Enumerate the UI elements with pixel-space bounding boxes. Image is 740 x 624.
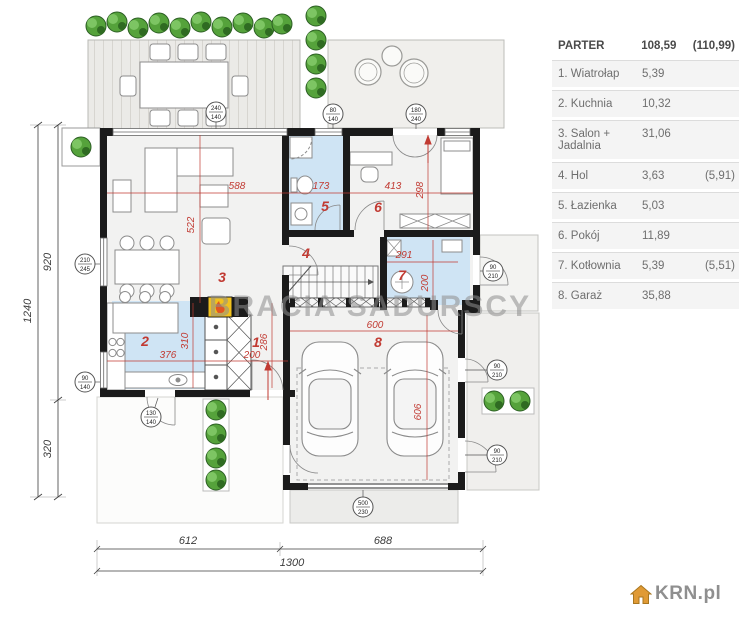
marker-top-value: 180 <box>411 108 422 114</box>
dim-total-height: 1240 <box>22 298 34 323</box>
legend-row-wiatrolap: 1. Wiatrołap 5,39 <box>552 60 739 87</box>
brand-name: KRN.pl <box>655 583 721 605</box>
room-label: 5. Łazienka <box>558 200 642 212</box>
wardrobe <box>400 214 470 228</box>
dim-salon-width: 588 <box>229 181 246 192</box>
marker-top-value: 500 <box>358 501 369 507</box>
legend-title: PARTER <box>558 40 641 52</box>
room-label: 3. Salon + Jadalnia <box>558 128 642 152</box>
bathroom-fixtures <box>290 137 313 225</box>
marker-bottom-value: 140 <box>80 385 91 391</box>
marker-bottom-value: 140 <box>211 115 222 121</box>
side-table <box>113 180 131 212</box>
marker-bottom-value: 210 <box>492 373 503 379</box>
room-number-3: 3 <box>218 269 226 285</box>
marker-top-value: 90 <box>490 265 497 271</box>
car-left <box>299 342 361 456</box>
room-area: 3,63 <box>642 170 694 182</box>
dim-bottom-total: 1300 <box>280 557 305 569</box>
room-label: 8. Garaż <box>558 290 642 302</box>
pillow <box>444 141 470 151</box>
marker-salon-left-window: 210 245 <box>75 254 100 274</box>
marker-bottom-value: 140 <box>146 420 157 426</box>
dim-kitchen-height: 310 <box>180 332 191 349</box>
dim-salon-height: 522 <box>186 216 197 233</box>
floor-plan-page: { "legend": { "header": {"label":"PARTER… <box>0 0 740 619</box>
desk-chair <box>361 167 378 182</box>
marker-top-value: 90 <box>494 449 501 455</box>
planter-top-left <box>62 128 100 166</box>
dim-upper-height: 920 <box>42 252 54 271</box>
marker-bottom-value: 230 <box>358 510 369 516</box>
legend-row-lazienka: 5. Łazienka 5,03 <box>552 192 739 219</box>
marker-bottom-value: 140 <box>328 117 339 123</box>
bushes-right-pair <box>482 388 534 414</box>
room-area: 35,88 <box>642 290 694 302</box>
marker-top-value: 130 <box>146 411 157 417</box>
room-label: 1. Wiatrołap <box>558 68 642 80</box>
room-number-8: 8 <box>374 334 382 350</box>
coffee-table <box>200 185 228 207</box>
marker-bottom-value: 210 <box>488 274 499 280</box>
pavement-left <box>97 397 283 523</box>
dim-bath-width: 173 <box>313 181 330 192</box>
watermark: BRACIA SADURSCY <box>209 290 531 323</box>
shelf <box>442 240 462 252</box>
dim-room6-width: 413 <box>385 181 402 192</box>
dim-hall-width: 200 <box>243 350 261 361</box>
room-number-7: 7 <box>398 267 407 283</box>
toilet <box>297 176 313 194</box>
legend-header: PARTER 108,59 (110,99) <box>552 36 739 60</box>
room-area: 10,32 <box>642 98 694 110</box>
dim-lower-height: 320 <box>42 439 54 458</box>
marker-top-value: 80 <box>330 108 337 114</box>
room-area: 31,06 <box>642 128 694 140</box>
room-area: 5,03 <box>642 200 694 212</box>
legend-row-salon: 3. Salon + Jadalnia 31,06 <box>552 120 739 159</box>
room-label: 2. Kuchnia <box>558 98 642 110</box>
legend-total-area-extra: (110,99) <box>693 40 735 52</box>
marker-top-value: 240 <box>211 106 222 112</box>
legend-row-kuchnia: 2. Kuchnia 10,32 <box>552 90 739 117</box>
armchair <box>202 218 230 244</box>
legend-total-area: 108,59 <box>641 40 693 52</box>
marker-bottom-value: 210 <box>492 458 503 464</box>
room-number-2: 2 <box>140 333 149 349</box>
legend-row-pokoj: 6. Pokój 11,89 <box>552 222 739 249</box>
marker-top-value: 90 <box>494 364 501 370</box>
shower <box>290 137 312 158</box>
room-number-5: 5 <box>321 198 329 214</box>
driveway-apron <box>290 490 458 523</box>
washer <box>291 203 312 225</box>
legend-row-garaz: 8. Garaż 35,88 <box>552 282 739 309</box>
hedge-bottom-strip <box>203 399 229 491</box>
dim-bottom-right: 688 <box>374 535 393 547</box>
toilet-tank <box>291 178 297 192</box>
room-legend: PARTER 108,59 (110,99) 1. Wiatrołap 5,39… <box>552 36 739 312</box>
room-area-extra: (5,91) <box>705 170 735 182</box>
dining-table <box>115 250 179 284</box>
legend-row-hol: 4. Hol 3,63 (5,91) <box>552 162 739 189</box>
hedge-top <box>86 12 292 38</box>
house-icon <box>630 584 652 605</box>
hedge-right-of-terrace <box>306 6 326 98</box>
room-area: 5,39 <box>642 68 694 80</box>
marker-kitchen-left-window: 90 140 <box>75 372 100 392</box>
garage-door <box>308 484 448 488</box>
dim-boiler-width: 291 <box>395 250 413 261</box>
island <box>113 303 178 333</box>
room-label: 7. Kotłownia <box>558 260 642 272</box>
desk <box>350 152 392 165</box>
dim-hall-height: 286 <box>259 333 270 351</box>
room-number-1: 1 <box>252 334 260 350</box>
room-number-6: 6 <box>374 199 382 215</box>
room-area: 5,39 <box>642 260 694 272</box>
room-number-4: 4 <box>301 245 310 261</box>
marker-bottom-value: 240 <box>411 117 422 123</box>
dim-room6-height: 298 <box>415 181 426 199</box>
room-label: 4. Hol <box>558 170 642 182</box>
dim-bottom-left: 612 <box>179 535 197 547</box>
car-right <box>384 342 446 456</box>
dim-garage-height: 606 <box>413 403 424 420</box>
room-area: 11,89 <box>642 230 694 242</box>
room-area-extra: (5,51) <box>705 260 735 272</box>
krn-logo: KRN.pl <box>630 583 721 605</box>
room-label: 6. Pokój <box>558 230 642 242</box>
marker-bottom-value: 245 <box>80 267 91 273</box>
dim-kitchen-width: 376 <box>160 350 177 361</box>
marker-top-value: 210 <box>80 258 91 264</box>
marker-top-value: 90 <box>82 376 89 382</box>
legend-row-kotlownia: 7. Kotłownia 5,39 (5,51) <box>552 252 739 279</box>
